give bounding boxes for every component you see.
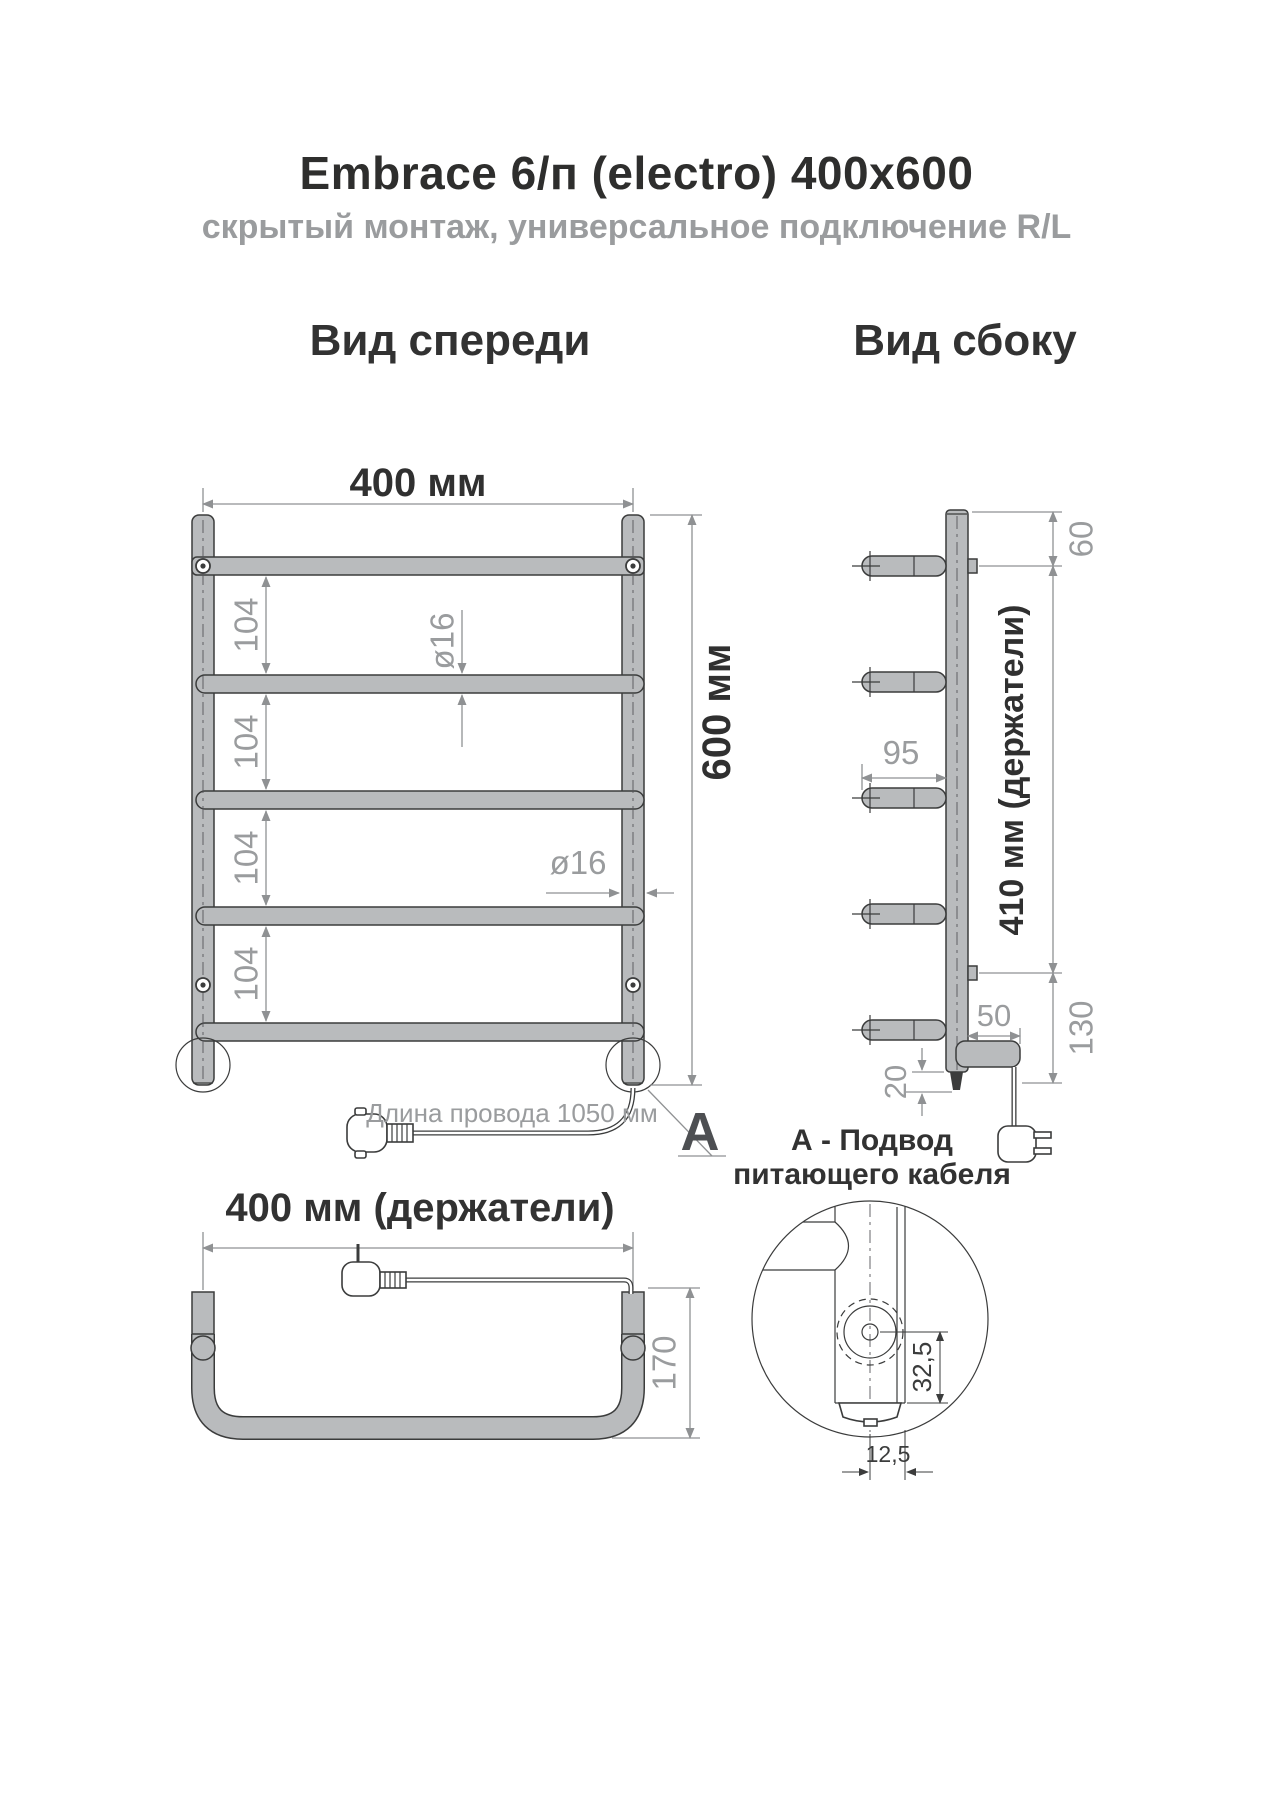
depth-dim: 170 [646,1335,683,1390]
u-tube [203,1334,633,1428]
detail-marker-letter: А [681,1102,720,1162]
side-view-drawing: 60 410 мм (держатели) 95 50 130 20 [852,510,1100,1162]
mount-screw [626,559,640,573]
bar-diameter-dim: ø16 [424,613,461,670]
towel-rail-spec-sheet: Embrace 6/п (electro) 400x600 скрытый мо… [0,0,1273,1800]
wall-tab-bottom [968,966,977,980]
unit-offset-dim: 130 [1063,1000,1100,1055]
bracket-notch [835,1222,849,1270]
rung-spacing-dim: 104 [228,830,265,885]
front-width-dim: 400 мм [349,461,486,505]
cable-length-note: Длина провода 1050 мм [366,1098,657,1128]
holder-peg [852,783,946,813]
plug-side-view [998,1126,1051,1162]
rung-spacing-dim: 104 [228,597,265,652]
mount-screw [626,978,640,992]
holder-peg [852,667,946,697]
holder-peg [852,1015,946,1045]
cap-nipple [864,1419,877,1426]
holder-peg [852,551,946,581]
post-diameter-dim: ø16 [550,844,607,881]
wall-bracket-right [622,1292,644,1334]
foot-dim: 20 [878,1065,913,1099]
rosette-right [621,1336,645,1360]
detail-view-drawing: 32,5 12,5 [752,1201,988,1480]
side-post-foot [950,1072,963,1090]
rung-spacing-dim: 104 [228,714,265,769]
front-rung-5 [196,1023,644,1041]
front-rung-4 [196,907,644,925]
u-tube-outline [203,1334,633,1428]
rung-spacing-dim: 104 [228,946,265,1001]
plug-top-view [342,1244,406,1296]
mount-screw [196,559,210,573]
wall-tab-top [968,559,977,573]
power-cable [406,1280,631,1294]
mount-screw [196,978,210,992]
bottom-view-drawing: 170 [191,1232,700,1438]
axis-offset-dim: 32,5 [907,1342,937,1393]
holders-span-dim: 410 мм (держатели) [993,605,1031,936]
front-view-drawing: 400 мм 600 мм 104 104 104 104 ø16 [176,461,739,1162]
rosette-left [191,1336,215,1360]
wall-bracket-left [192,1292,214,1334]
front-rung-2 [196,675,644,693]
heating-unit [956,1041,1020,1067]
top-offset-dim: 60 [1063,521,1100,558]
holder-peg [852,899,946,929]
unit-length-dim: 50 [977,998,1011,1033]
technical-drawing: 400 мм 600 мм 104 104 104 104 ø16 [0,0,1273,1800]
holder-depth-dim: 95 [883,734,920,771]
front-rung-3 [196,791,644,809]
front-rung-1 [192,557,644,575]
front-height-dim: 600 мм [695,643,739,780]
cap-offset-dim: 12,5 [866,1441,911,1467]
